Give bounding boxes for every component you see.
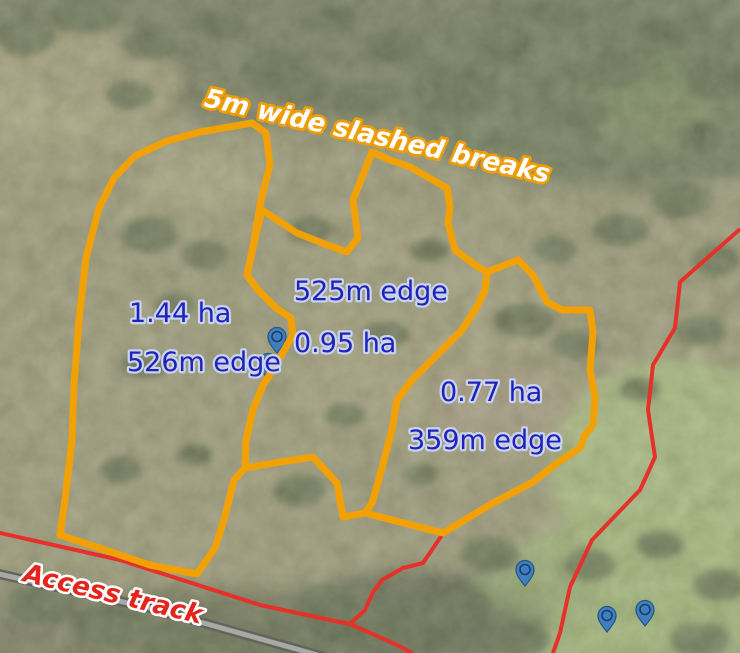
label-left-edge: 526m edge [127, 347, 281, 378]
satellite-map-view[interactable]: 5m wide slashed breaks 1.44 ha 526m edge… [0, 0, 740, 653]
label-right-edge: 359m edge [408, 425, 562, 456]
label-left-area: 1.44 ha [129, 298, 231, 329]
label-mid-edge: 525m edge [294, 276, 448, 307]
map-canvas[interactable]: 5m wide slashed breaks 1.44 ha 526m edge… [0, 0, 740, 653]
label-right-area: 0.77 ha [440, 377, 542, 408]
label-mid-area: 0.95 ha [294, 328, 396, 359]
